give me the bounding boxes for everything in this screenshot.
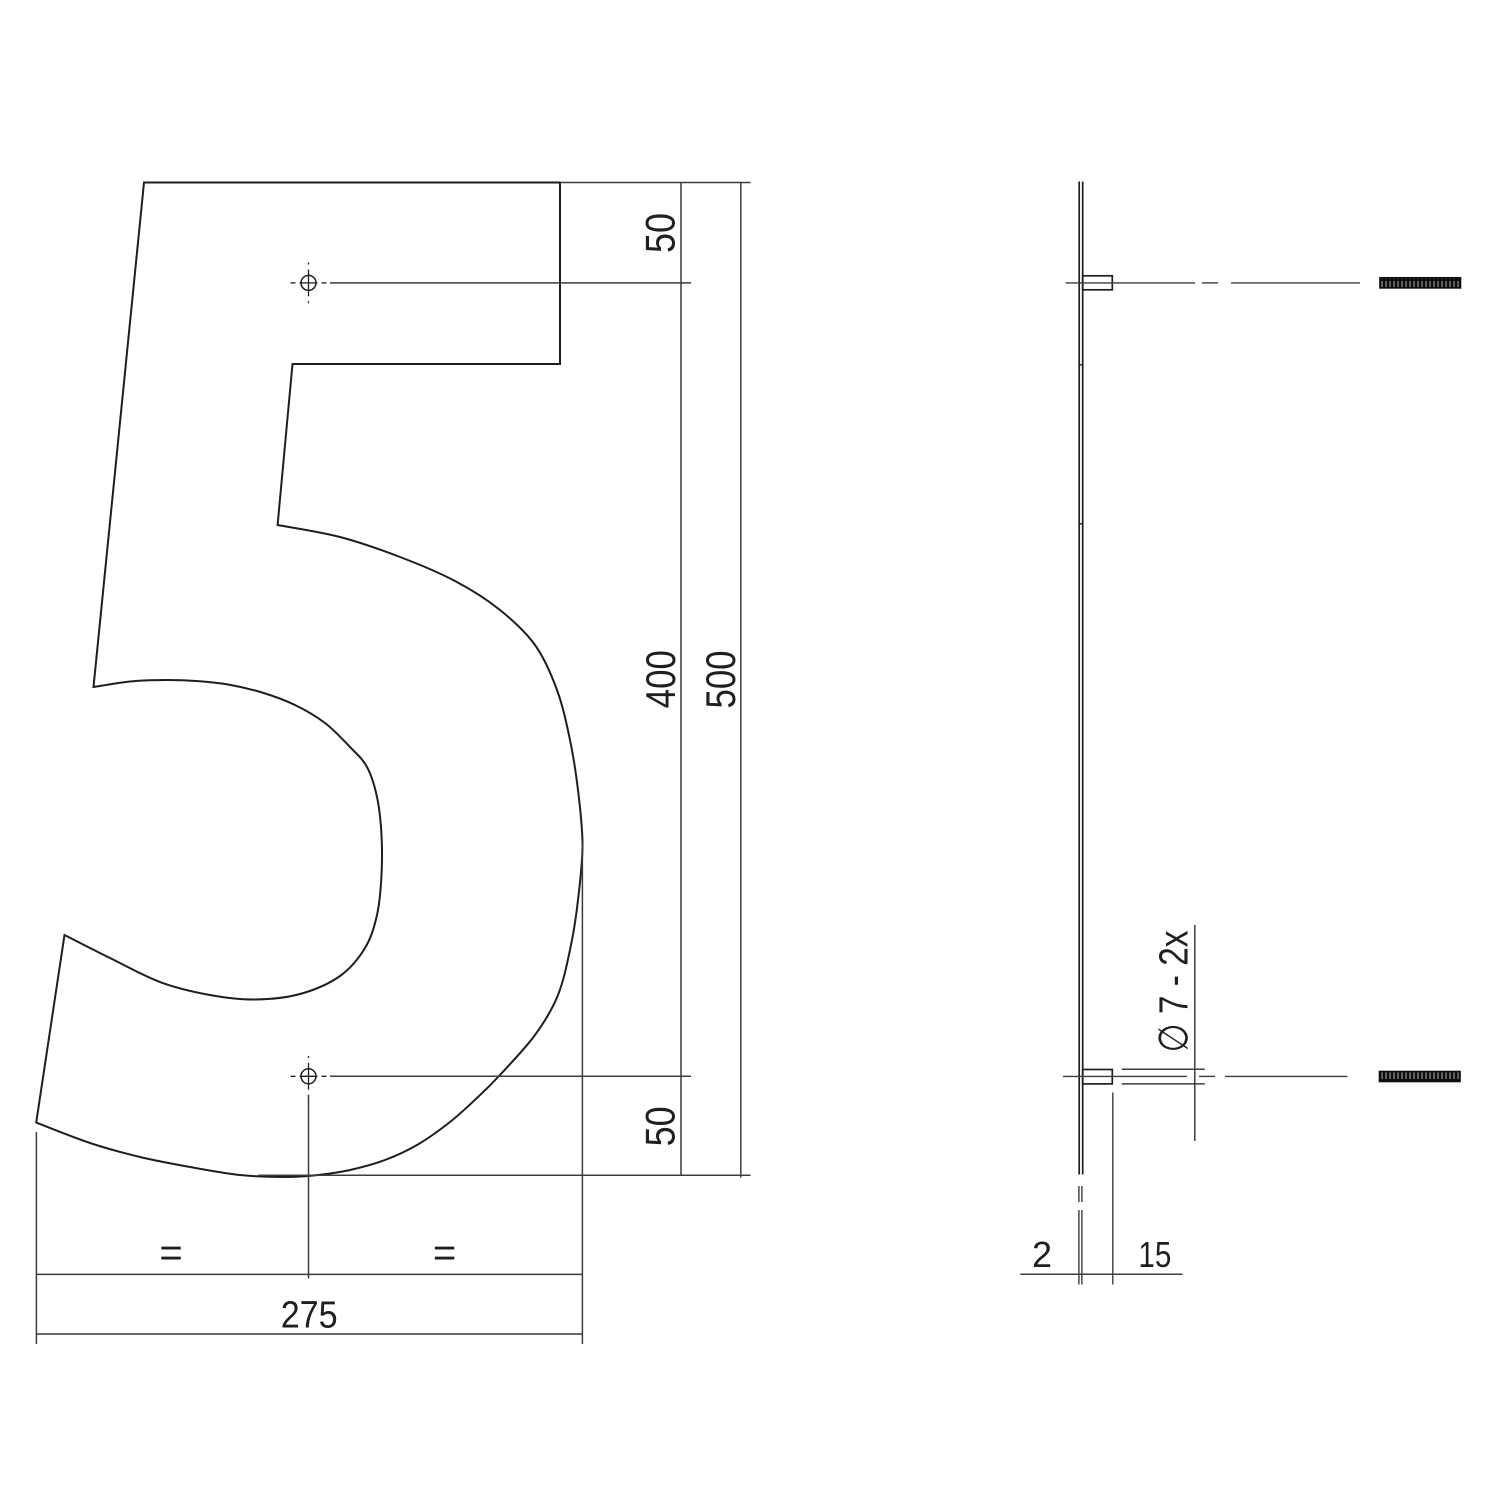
svg-text:50: 50: [637, 213, 684, 253]
svg-text:=: =: [433, 1231, 456, 1275]
svg-text:15: 15: [1138, 1234, 1171, 1275]
svg-text:500: 500: [697, 651, 744, 709]
svg-text:∅ 7 - 2x: ∅ 7 - 2x: [1151, 930, 1197, 1052]
svg-text:2: 2: [1032, 1234, 1052, 1275]
svg-text:50: 50: [636, 1106, 683, 1146]
svg-text:=: =: [159, 1231, 182, 1275]
svg-text:400: 400: [637, 650, 684, 708]
svg-text:275: 275: [281, 1295, 338, 1337]
